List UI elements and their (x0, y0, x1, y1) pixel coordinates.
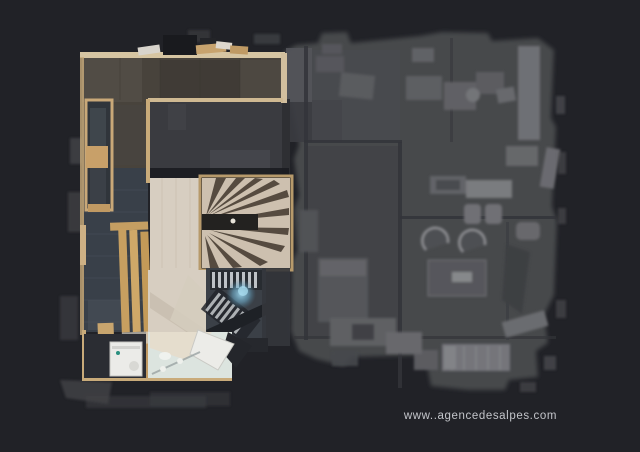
floorplan-image (0, 0, 640, 452)
watermark-url: www..agencedesalpes.com (404, 410, 557, 422)
laundry-corner (84, 334, 146, 378)
doorstep-objects (138, 35, 249, 55)
screenshot-root: www..agencedesalpes.com (0, 0, 640, 452)
wardrobe (518, 46, 540, 140)
wall-cabinet (86, 100, 112, 212)
bathroom (148, 330, 252, 378)
winder-staircase (150, 176, 292, 270)
stool (466, 88, 480, 102)
scanned-floor-layer (80, 35, 292, 381)
